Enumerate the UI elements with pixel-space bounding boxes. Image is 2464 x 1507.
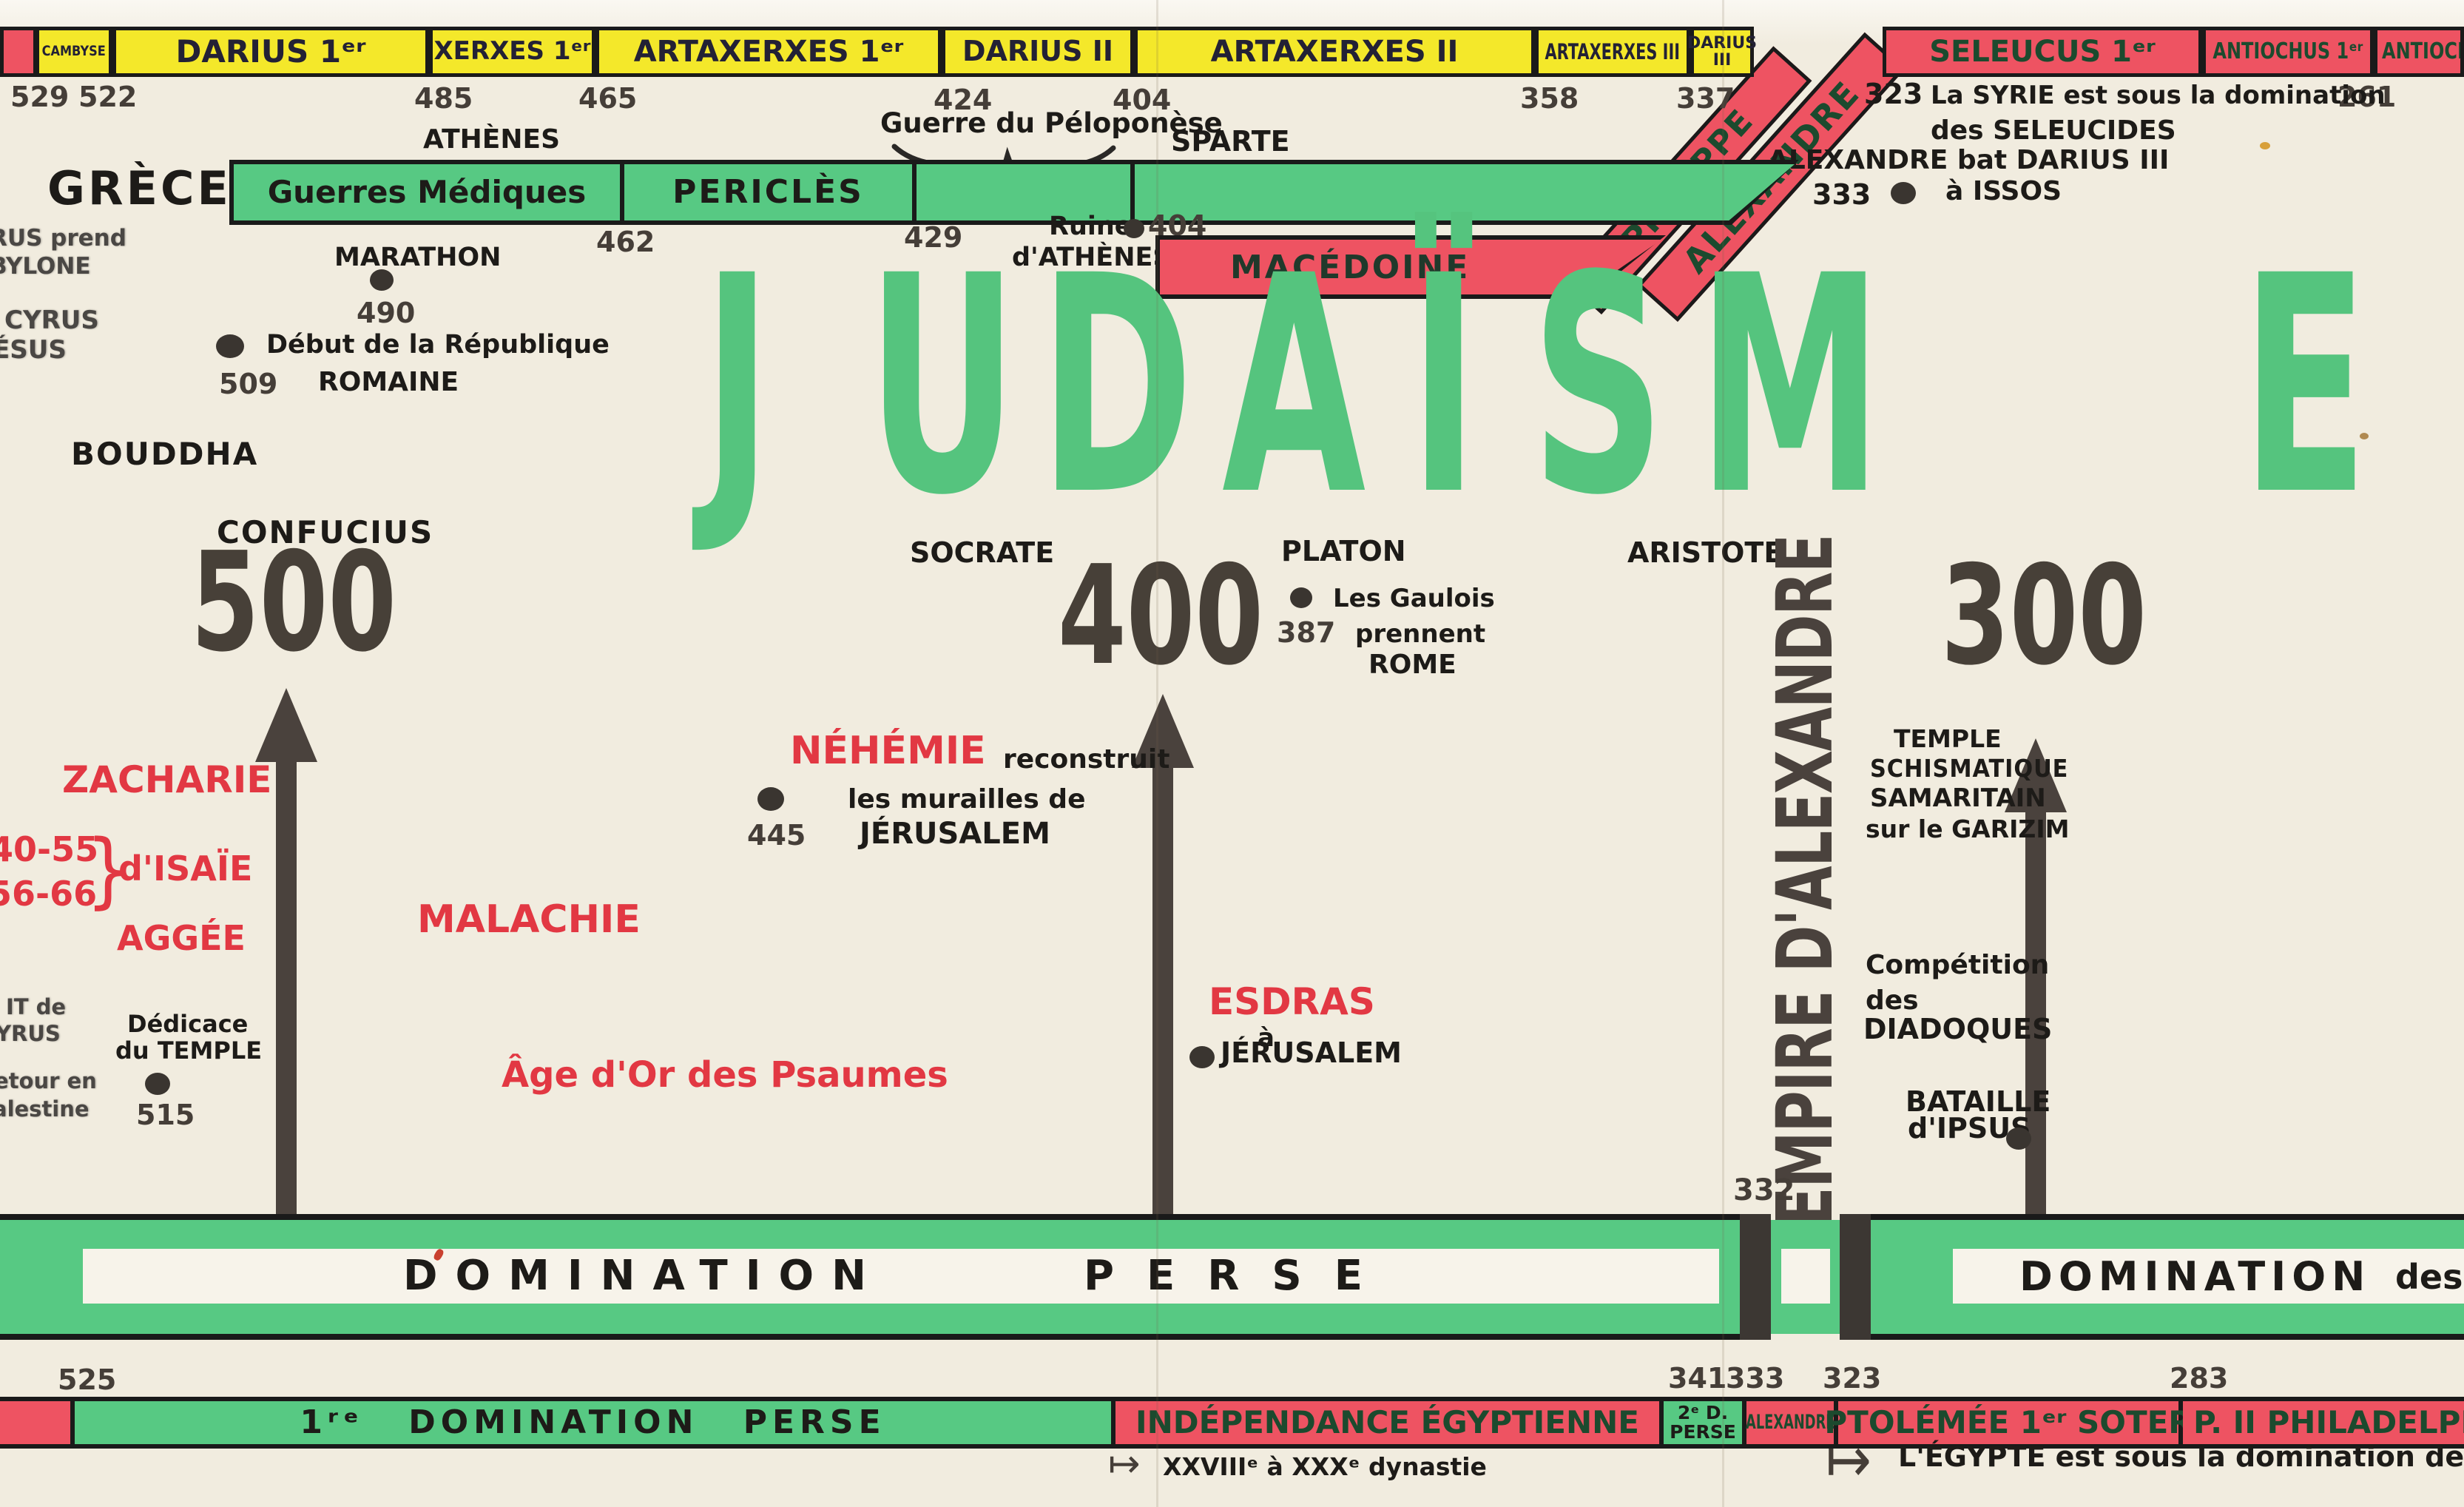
date-525: 525	[58, 1366, 116, 1395]
egypt-independance-label: INDÉPENDANCE ÉGYPTIENNE	[1135, 1406, 1639, 1439]
title-letter-a: A	[1222, 237, 1366, 536]
cut-edit-de: IT de	[6, 996, 66, 1018]
date-490: 490	[357, 299, 415, 328]
republic-dot	[216, 334, 244, 358]
platon-label: PLATON	[1281, 537, 1406, 567]
date-462: 462	[596, 228, 655, 257]
century-500: 500	[191, 534, 396, 671]
temple-line-4: sur le GARIZIM	[1866, 817, 2069, 843]
bar-artaxerxes1: ARTAXERXES 1ᵉʳ	[595, 27, 942, 77]
nehemie-murailles: les murailles de	[848, 786, 1086, 814]
bar-seleucus1: SELEUCUS 1ᵉʳ	[1883, 27, 2202, 77]
temple-line-2: SCHISMATIQUE	[1870, 756, 2068, 782]
esdras-label: ESDRAS	[1209, 982, 1375, 1022]
xerxes1-label: XERXES 1ᵉʳ	[433, 38, 590, 65]
date-323b: 323	[1823, 1364, 1881, 1394]
darius1-label: DARIUS 1ᵉʳ	[176, 36, 366, 68]
century-400: 400	[1058, 547, 1263, 684]
timeline-poster: PHILIPPE ALEXANDRE CAMBYSE DARIUS 1ᵉʳ XE…	[0, 0, 2464, 1507]
paper-fold-right	[1722, 0, 1724, 1507]
lagides-note: L'ÉGYPTE est sous la domination des LAGI…	[1898, 1443, 2464, 1472]
cut-retour-en: etour en	[0, 1070, 97, 1092]
arrow-500-shaft	[276, 755, 297, 1217]
darius2-label: DARIUS II	[962, 37, 1113, 67]
malachie-label: MALACHIE	[417, 900, 641, 940]
temple-line-3: SAMARITAIN	[1870, 786, 2046, 812]
egypt-ptolemee: PTOLÉMÉE 1ᵉʳ SOTER	[1838, 1401, 2178, 1444]
cut-cyrus2: YRUS	[0, 1022, 61, 1045]
gaulois-label-2: prennent	[1355, 621, 1485, 648]
antiochus1-label: ANTIOCHUS 1ᵉʳ	[2213, 40, 2363, 64]
date-283: 283	[2170, 1364, 2228, 1394]
bouddha-label: BOUDDHA	[71, 438, 258, 471]
date-515: 515	[136, 1101, 195, 1130]
cambyse-label: CAMBYSE	[42, 44, 106, 59]
nehemie-jerusalem: JÉRUSALEM	[860, 818, 1050, 849]
antiochus2-label: ANTIOCHUS	[2382, 40, 2464, 64]
egypt-alexandre: ALEXANDRE	[1746, 1401, 1834, 1444]
bar-cambyse: CAMBYSE	[36, 27, 112, 77]
alexander-band-bar-333	[1740, 1214, 1771, 1340]
ipsus-dot	[2006, 1127, 2031, 1150]
bar-darius2: DARIUS II	[942, 27, 1134, 77]
republic-label: Début de la République	[266, 331, 610, 359]
diadoques-line-1: Compétition	[1866, 951, 2049, 980]
sparte-label: SPARTE	[1171, 127, 1290, 157]
syria-note-line1: La SYRIE est sous la domination	[1931, 83, 2386, 109]
bar-artaxerxes2: ARTAXERXES II	[1134, 27, 1535, 77]
dynastie-arrow-icon: ↦	[1108, 1444, 1141, 1485]
date-387: 387	[1277, 618, 1335, 648]
date-522: 522	[78, 83, 137, 112]
arrow-500-head	[255, 688, 317, 762]
title-letter-e: E	[2241, 237, 2369, 536]
bar-antiochus1: ANTIOCHUS 1ᵉʳ	[2202, 27, 2374, 77]
gaulois-label-3: ROME	[1368, 651, 1457, 679]
alexander-band-mid-panel	[1781, 1249, 1830, 1304]
egypt-2e-domination: 2ᵉ D. PERSE	[1664, 1401, 1742, 1444]
marathon-dot	[370, 269, 394, 291]
issos-note-line2: à ISSOS	[1945, 178, 2062, 206]
nehemie-dot	[757, 787, 784, 811]
title-letter-s: S	[1531, 237, 1665, 536]
title-letter-i: Ï	[1409, 237, 1478, 536]
bar-darius1: DARIUS 1ᵉʳ	[112, 27, 429, 77]
diadoques-line-3: DIADOQUES	[1863, 1015, 2052, 1045]
domination-lagides-label: DOMINATION	[2019, 1256, 2371, 1298]
paper-speck-3	[2360, 433, 2369, 439]
bar-xerxes1: XERXES 1ᵉʳ	[429, 27, 595, 77]
century-300: 300	[1941, 547, 2147, 684]
age-or-label: Âge d'Or des Psaumes	[502, 1056, 948, 1093]
egypt-red-stub	[0, 1401, 70, 1444]
bar-artaxerxes3: ARTAXERXES III	[1535, 27, 1690, 77]
date-358: 358	[1520, 84, 1579, 114]
date-485: 485	[414, 84, 473, 114]
artaxerxes1-label: ARTAXERXES 1ᵉʳ	[634, 36, 904, 67]
temple-line-1: TEMPLE	[1894, 726, 2002, 752]
arrow-300-shaft	[2025, 806, 2046, 1217]
egypt-philadelphe: P. II PHILADELPH	[2183, 1401, 2464, 1444]
dedicace-dot	[145, 1073, 170, 1095]
issos-date-333: 333	[1812, 181, 1871, 210]
greece-label: GRÈCE	[47, 164, 232, 212]
egypt-domination-perse-1-label: 1ʳᵉ DOMINATION PERSE	[300, 1406, 885, 1440]
egypt-ptolemee-label: PTOLÉMÉE 1ᵉʳ SOTER	[1824, 1406, 2192, 1439]
esdras-jerusalem: JÉRUSALEM	[1221, 1039, 1402, 1068]
date-465: 465	[578, 84, 637, 114]
title-letter-j: J	[703, 237, 772, 536]
paper-speck-2	[2260, 142, 2270, 149]
empire-alexandre-label: EMPIRE D'ALEXANDRE	[1760, 535, 1850, 1226]
artaxerxes3-label: ARTAXERXES III	[1545, 41, 1680, 63]
dynastie-note: XXVIIIᵉ à XXXᵉ dynastie	[1163, 1454, 1487, 1480]
isaie-range-2: 56-66	[0, 876, 97, 911]
egypt-alexandre-label: ALEXANDRE	[1746, 1412, 1835, 1433]
esdras-dot	[1189, 1046, 1215, 1068]
date-445: 445	[747, 821, 806, 851]
cut-cyrus: CYRUS	[4, 308, 99, 334]
date-337: 337	[1676, 84, 1735, 114]
date-529: 529	[10, 83, 69, 112]
gaulois-dot	[1290, 587, 1312, 608]
syria-note-line2: des SELEUCIDES	[1931, 117, 2176, 145]
dedicace-label-2: du TEMPLE	[115, 1039, 262, 1064]
marathon-label: MARATHON	[334, 244, 501, 272]
egypt-philadelphe-label: P. II PHILADELPH	[2193, 1406, 2464, 1439]
egypt-2e-domination-l2: PERSE	[1670, 1423, 1736, 1442]
domination-perse-label-2: PERSE	[1084, 1255, 1395, 1298]
syria-date-323: 323	[1864, 80, 1923, 109]
gaulois-label-1: Les Gaulois	[1333, 586, 1495, 613]
date-509: 509	[219, 370, 277, 399]
nehemie-label: NÉHÉMIE	[790, 731, 986, 772]
issos-note-line1: ALEXANDRE bat DARIUS III	[1768, 146, 2169, 175]
egypt-independance: INDÉPENDANCE ÉGYPTIENNE	[1115, 1401, 1659, 1444]
domination-perse-label-1: DOMINATION	[403, 1255, 884, 1298]
cut-cyrus-babylone-2: BYLONE	[0, 254, 91, 279]
artaxerxes2-label: ARTAXERXES II	[1211, 36, 1459, 67]
nehemie-reconstruit: reconstruit	[1003, 746, 1169, 774]
empire-alexandre-vertical: EMPIRE D'ALEXANDRE	[1763, 555, 1846, 1206]
isaie-range-1: 40-55	[0, 832, 98, 867]
date-332: 332	[1733, 1175, 1795, 1206]
egypt-domination-perse-1: 1ʳᵉ DOMINATION PERSE	[75, 1401, 1111, 1444]
aggee-label: AGGÉE	[117, 920, 246, 956]
bar-antiochus2: ANTIOCHUS	[2374, 27, 2464, 77]
cut-cyrus-babylone-1: RUS prend	[0, 226, 126, 251]
socrate-label: SOCRATE	[910, 539, 1054, 568]
cut-palestine: alestine	[0, 1098, 90, 1120]
domination-lagides-des: des	[2395, 1259, 2463, 1295]
issos-dot	[1891, 182, 1916, 204]
persia-band-left-panel	[83, 1249, 1719, 1304]
lagides-arrow-icon: ↦	[1826, 1428, 1871, 1494]
guerres-mediques-label: Guerres Médiques	[234, 164, 620, 220]
bar-red-stub	[0, 27, 37, 77]
date-341: 341	[1668, 1364, 1727, 1394]
paper-fold-left	[1156, 0, 1158, 1507]
title-letter-u: U	[867, 237, 1018, 536]
zacharie-label: ZACHARIE	[62, 761, 271, 800]
dedicace-label-1: Dédicace	[127, 1012, 248, 1037]
date-333b: 333	[1726, 1364, 1784, 1394]
alexander-band-bar-323	[1840, 1214, 1871, 1340]
romaine-label: ROMAINE	[318, 368, 459, 397]
title-letter-m: M	[1698, 237, 1883, 536]
cut-esus: ÉSUS	[0, 337, 67, 364]
egypt-2e-domination-l1: 2ᵉ D.	[1678, 1403, 1728, 1423]
diadoques-line-2: des	[1866, 987, 1919, 1015]
isaie-label: d'ISAÏE	[118, 851, 252, 886]
seleucus1-label: SELEUCUS 1ᵉʳ	[1929, 36, 2156, 67]
athenes-label: ATHÈNES	[423, 126, 560, 154]
title-letter-d: D	[1039, 237, 1193, 536]
